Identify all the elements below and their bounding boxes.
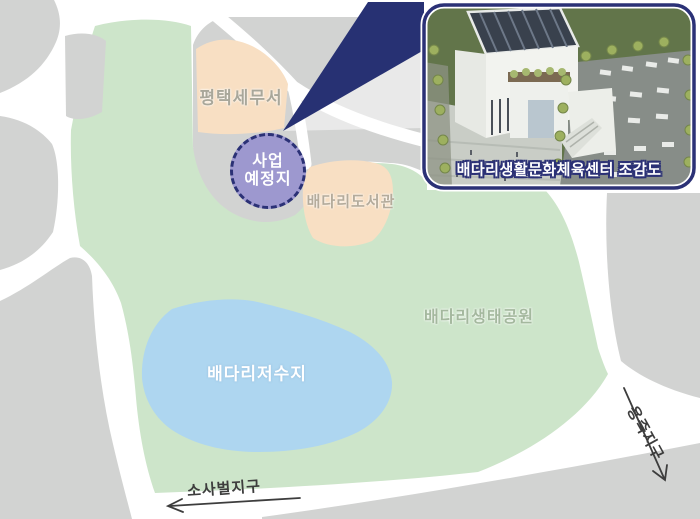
site-label: 사업 예정지 [244,153,291,190]
block-park-notch [65,34,106,120]
site-label-line1: 사업 [252,153,283,170]
site-label-line2: 예정지 [244,171,291,188]
base-map [0,0,700,519]
reservoir-label: 배다리저수지 [207,360,307,385]
map-canvas: 평택세무서 배다리도서관 배다리생태공원 배다리저수지 소사벌지구 용죽지구 사… [0,0,700,519]
inset-caption: 배다리생활문화체육센터 조감도 [457,159,662,180]
inset-glass [528,100,554,138]
tax-office-label: 평택세무서 [199,84,282,109]
park-label: 배다리생태공원 [424,303,534,327]
library-label: 배다리도서관 [307,191,396,212]
site-circle: 사업 예정지 [230,133,306,209]
